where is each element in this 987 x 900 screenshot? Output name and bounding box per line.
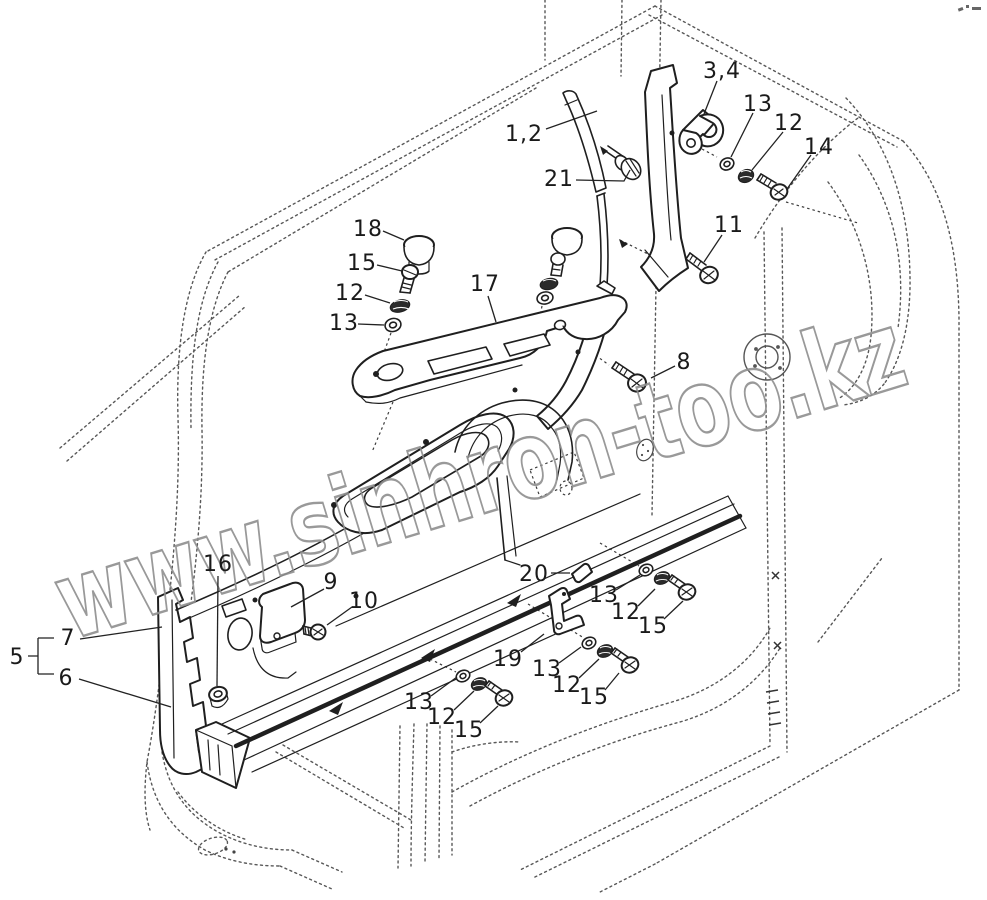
part-label-leader-27 <box>431 677 457 696</box>
corner-mark <box>958 5 981 12</box>
part-label-12: 12 <box>335 281 365 306</box>
screw-21 <box>600 146 645 183</box>
part-label-leader-24 <box>559 647 581 663</box>
knob-17-fastener <box>536 228 582 306</box>
part-label-leader-18 <box>79 679 171 707</box>
part-label-leader-7 <box>383 231 404 240</box>
part-label-leader-9 <box>365 295 390 303</box>
part-label-3-4: 3,4 <box>703 59 741 84</box>
part-label-19: 19 <box>493 647 523 672</box>
bolt-11 <box>686 253 721 286</box>
part-label-10: 10 <box>349 589 379 614</box>
part-label-9: 9 <box>324 570 339 595</box>
part-label-15: 15 <box>454 718 484 743</box>
part-label-8: 8 <box>677 350 692 375</box>
part-label-20: 20 <box>519 562 549 587</box>
part-label-leader-20 <box>616 575 640 590</box>
part-label-13: 13 <box>329 311 359 336</box>
part-label-12: 12 <box>552 673 582 698</box>
part-label-leader-28 <box>454 691 474 710</box>
plug-16 <box>207 685 228 708</box>
part-label-leader-23 <box>521 634 544 652</box>
clip-20 <box>572 564 592 582</box>
part-label-7: 7 <box>61 626 76 651</box>
part-label-leader-11 <box>488 296 496 322</box>
part-label-6: 6 <box>59 666 74 691</box>
part-label-17: 17 <box>470 272 500 297</box>
bolt-15-left <box>400 265 418 293</box>
part-label-12: 12 <box>427 705 457 730</box>
part-label-1-2: 1,2 <box>505 122 543 147</box>
part-label-leader-8 <box>377 265 402 271</box>
part-label-14: 14 <box>804 135 834 160</box>
part-label-leader-2 <box>731 113 753 157</box>
part-label-15: 15 <box>347 251 377 276</box>
part-label-leader-1 <box>704 81 717 114</box>
striker-part-3-4 <box>679 110 723 154</box>
bolt-10 <box>303 625 326 640</box>
washer-12-left <box>389 298 411 315</box>
hardware-set-right <box>637 562 698 602</box>
part-label-15: 15 <box>579 685 609 710</box>
part-label-leader-6 <box>704 235 722 262</box>
part-label-13: 13 <box>743 92 773 117</box>
part-label-15: 15 <box>638 614 668 639</box>
parts-diagram-page: www.sinhron-too.kz 1,23,4131214211118151… <box>0 0 987 900</box>
part-label-leader-4 <box>787 155 811 189</box>
part-label-18: 18 <box>353 217 383 242</box>
part-label-5: 5 <box>10 645 25 670</box>
nut-13-top <box>718 156 736 172</box>
part-label-11: 11 <box>714 213 744 238</box>
label-5-bracket <box>28 638 54 674</box>
part-label-12: 12 <box>774 111 804 136</box>
part-label-12: 12 <box>611 600 641 625</box>
excavator-cab-parts-diagram: www.sinhron-too.kz 1,23,4131214211118151… <box>0 0 987 900</box>
nut-13-left <box>384 317 403 334</box>
part-label-leader-10 <box>358 324 384 325</box>
weatherstrip-lower <box>597 193 615 294</box>
part-label-16: 16 <box>203 552 233 577</box>
bolt-14 <box>757 174 790 202</box>
part-label-leader-25 <box>579 659 599 678</box>
part-label-leader-3 <box>752 132 783 170</box>
hardware-set-left <box>454 668 515 708</box>
part-label-21: 21 <box>544 167 574 192</box>
hardware-set-middle <box>580 635 641 675</box>
